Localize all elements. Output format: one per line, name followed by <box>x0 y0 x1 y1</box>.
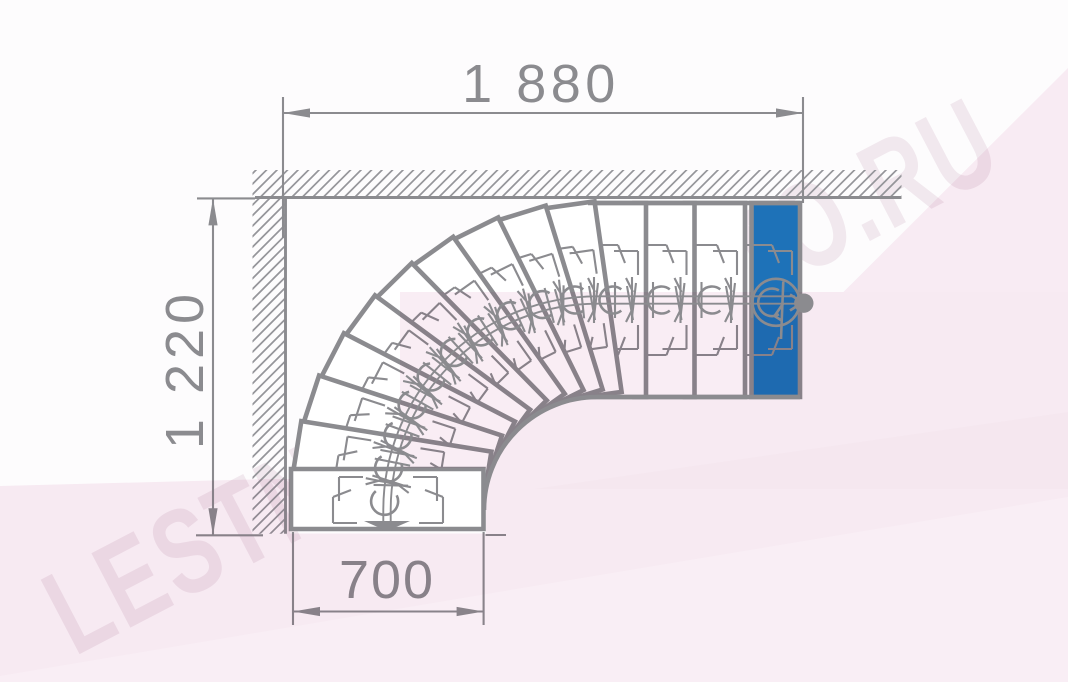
svg-text:1 220: 1 220 <box>155 289 215 449</box>
svg-text:1 880: 1 880 <box>462 54 620 114</box>
